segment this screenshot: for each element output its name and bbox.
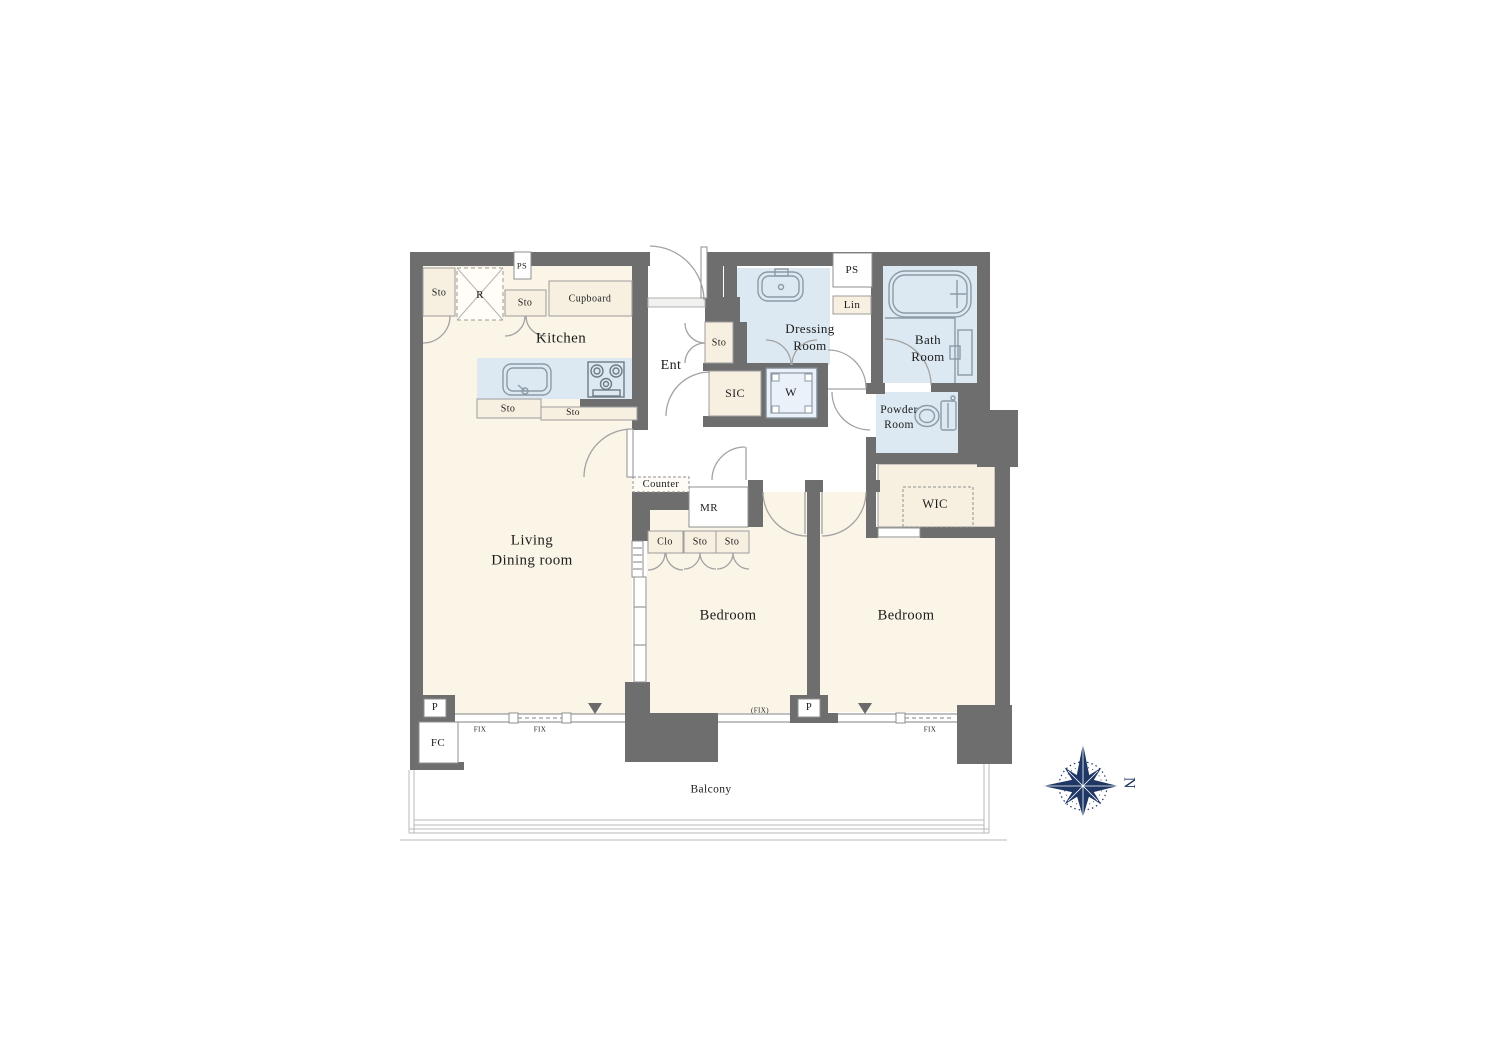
kitchen-counter-area	[477, 358, 637, 399]
pipe-right-label: P	[806, 701, 812, 715]
bath-room-label: Bath Room	[911, 332, 944, 366]
balcony-label: Balcony	[690, 783, 731, 798]
dressing-door-arc	[828, 350, 866, 389]
powder-room-label: Powder Room	[880, 403, 918, 433]
entrance-storage-doors-arc	[685, 323, 705, 363]
storage-counter-right-box	[541, 407, 637, 420]
washer-label: W	[785, 385, 797, 401]
entrance-label: Ent	[661, 357, 682, 375]
refrigerator-label: R	[476, 288, 484, 302]
pipe-left-label: P	[432, 701, 438, 715]
pipe-space-left-label: PS	[517, 260, 527, 271]
pipe-space-right-label: PS	[845, 263, 858, 277]
ldk-floor	[423, 266, 632, 714]
fix-window-1-label: FIX	[474, 725, 486, 734]
storage-entrance-label: Sto	[712, 337, 727, 350]
north-label: N	[1118, 777, 1139, 789]
wic-label: WIC	[922, 496, 948, 512]
kitchen-door-leaf	[627, 429, 633, 477]
entrance-door-jamb	[701, 247, 707, 298]
meter-room-door-arc	[712, 447, 746, 480]
floor-plan-page: KitchenLiving Dining roomEntDressing Roo…	[0, 0, 1500, 1060]
linen-label: Lin	[844, 298, 860, 312]
bedroom-2-label: Bedroom	[878, 607, 935, 626]
compass-rose-icon	[1043, 744, 1120, 823]
fix-window-2-label: FIX	[534, 725, 546, 734]
entrance-step	[648, 298, 705, 307]
entrance-door-arc	[650, 246, 704, 300]
balcony-railing	[400, 764, 1007, 840]
counter-label: Counter	[643, 478, 680, 492]
meter-room-box	[689, 487, 748, 527]
cupboard-label: Cupboard	[569, 293, 612, 306]
dressing-room-label: Dressing Room	[785, 321, 834, 355]
storage-counter-left-label: Sto	[501, 403, 516, 416]
sic-door-arc	[666, 372, 710, 416]
meter-room-label: MR	[700, 501, 718, 515]
wic-opening	[878, 528, 920, 537]
storage-topleft-label: Sto	[432, 287, 447, 300]
sic-label: SIC	[725, 386, 745, 402]
sliding-partition	[632, 541, 646, 682]
powder-door-arc	[832, 392, 870, 430]
floor-plan-drawing	[0, 0, 1500, 1060]
storage-b-label: Sto	[725, 536, 740, 549]
living-dining-label: Living Dining room	[491, 532, 572, 571]
storage-kitchen-label: Sto	[518, 297, 533, 310]
closet-label: Clo	[657, 536, 673, 549]
fix-window-3-label: (FIX)	[751, 706, 769, 715]
bedroom-1-label: Bedroom	[700, 607, 757, 626]
storage-a-label: Sto	[693, 536, 708, 549]
fix-window-4-label: FIX	[924, 725, 936, 734]
kitchen-label: Kitchen	[536, 329, 586, 349]
storage-counter-right-label: Sto	[566, 407, 580, 419]
fc-label: FC	[431, 736, 445, 750]
